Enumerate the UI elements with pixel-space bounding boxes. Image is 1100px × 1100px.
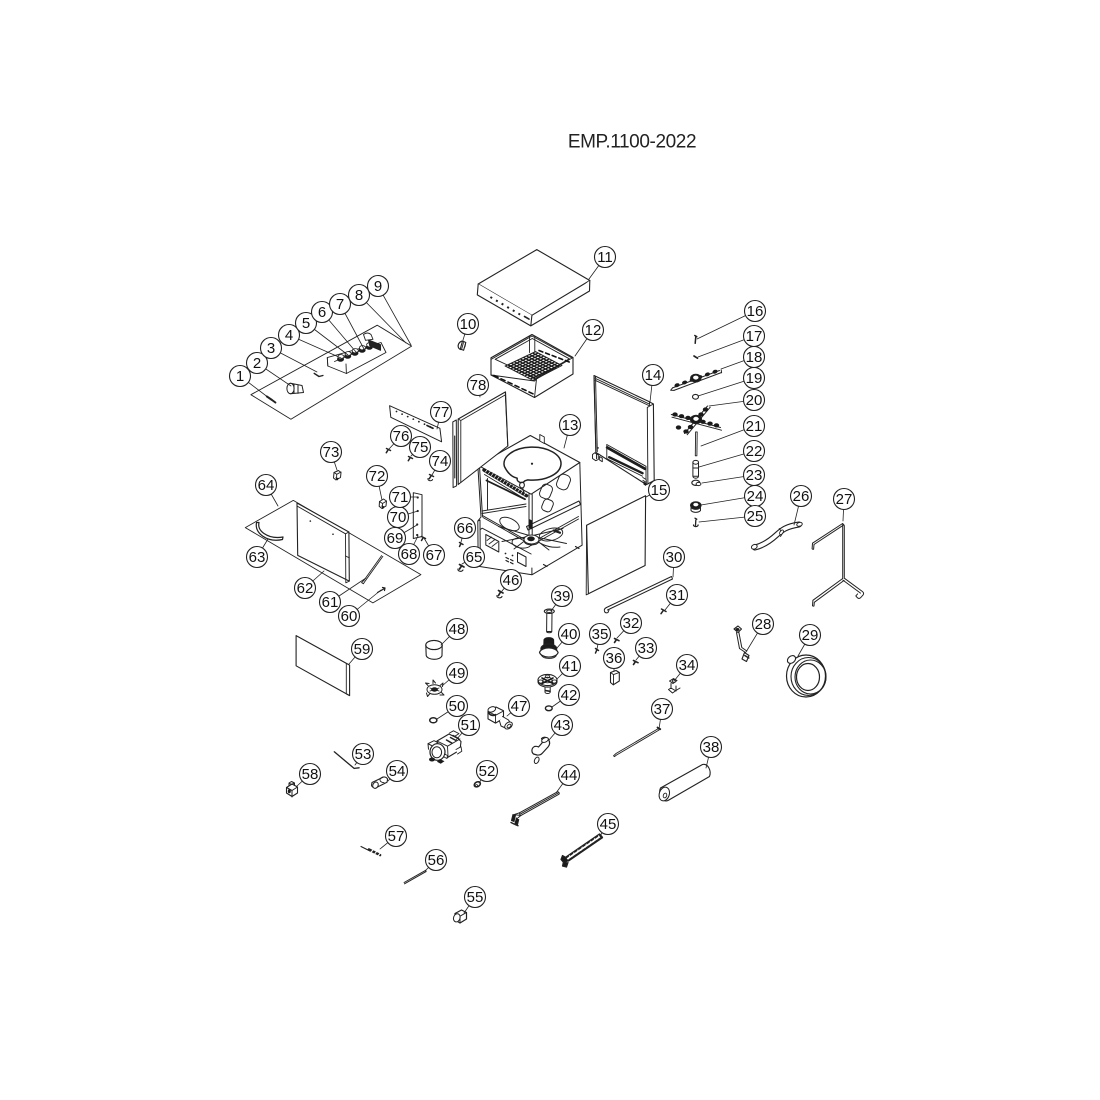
svg-text:47: 47: [511, 698, 528, 715]
svg-text:71: 71: [392, 489, 409, 506]
svg-text:13: 13: [562, 417, 579, 434]
svg-text:38: 38: [703, 739, 720, 756]
svg-text:60: 60: [341, 608, 358, 625]
svg-text:26: 26: [793, 488, 810, 505]
svg-text:35: 35: [592, 626, 609, 643]
svg-text:34: 34: [679, 657, 696, 674]
svg-text:8: 8: [355, 287, 363, 304]
svg-text:28: 28: [755, 616, 772, 633]
svg-text:56: 56: [428, 852, 445, 869]
svg-text:59: 59: [354, 641, 371, 658]
svg-text:18: 18: [746, 349, 763, 366]
svg-text:32: 32: [623, 615, 640, 632]
svg-text:66: 66: [457, 520, 474, 537]
svg-text:17: 17: [746, 328, 763, 345]
svg-text:33: 33: [638, 640, 655, 657]
svg-text:51: 51: [461, 717, 478, 734]
svg-text:73: 73: [323, 444, 340, 461]
svg-text:6: 6: [318, 304, 326, 321]
svg-text:4: 4: [285, 327, 293, 344]
svg-text:74: 74: [432, 453, 449, 470]
svg-text:61: 61: [322, 594, 339, 611]
svg-text:64: 64: [258, 477, 275, 494]
svg-text:24: 24: [747, 488, 764, 505]
svg-text:25: 25: [747, 508, 764, 525]
svg-text:40: 40: [561, 626, 578, 643]
svg-text:19: 19: [746, 370, 763, 387]
svg-text:37: 37: [654, 701, 671, 718]
svg-text:11: 11: [597, 249, 613, 266]
svg-text:42: 42: [561, 687, 578, 704]
svg-text:48: 48: [449, 621, 466, 638]
svg-text:55: 55: [467, 889, 484, 906]
svg-text:12: 12: [585, 322, 602, 339]
svg-text:68: 68: [401, 546, 418, 563]
svg-text:44: 44: [561, 767, 578, 784]
svg-text:21: 21: [746, 418, 763, 435]
svg-text:41: 41: [562, 658, 579, 675]
svg-text:50: 50: [449, 698, 466, 715]
svg-text:77: 77: [433, 404, 450, 421]
svg-text:69: 69: [387, 530, 404, 547]
svg-text:49: 49: [449, 665, 466, 682]
svg-text:45: 45: [600, 816, 617, 833]
svg-text:52: 52: [479, 763, 496, 780]
svg-text:5: 5: [302, 315, 310, 332]
svg-text:7: 7: [336, 296, 344, 313]
svg-text:70: 70: [390, 509, 407, 526]
svg-text:76: 76: [393, 428, 410, 445]
svg-text:27: 27: [836, 491, 853, 508]
svg-text:53: 53: [355, 746, 372, 763]
svg-text:15: 15: [651, 482, 668, 499]
svg-text:29: 29: [802, 627, 819, 644]
svg-text:23: 23: [746, 467, 763, 484]
svg-text:39: 39: [554, 588, 571, 605]
svg-text:78: 78: [470, 377, 487, 394]
svg-text:14: 14: [645, 367, 662, 384]
svg-text:62: 62: [297, 580, 314, 597]
svg-text:63: 63: [249, 549, 266, 566]
svg-text:30: 30: [666, 549, 683, 566]
svg-text:75: 75: [412, 439, 429, 456]
svg-text:10: 10: [460, 316, 477, 333]
svg-text:72: 72: [369, 468, 386, 485]
svg-text:58: 58: [302, 766, 319, 783]
svg-text:3: 3: [267, 340, 275, 357]
svg-text:31: 31: [669, 587, 686, 604]
svg-text:20: 20: [746, 392, 763, 409]
svg-text:57: 57: [388, 828, 405, 845]
svg-text:54: 54: [389, 763, 406, 780]
svg-text:67: 67: [426, 547, 443, 564]
svg-text:9: 9: [374, 278, 382, 295]
svg-text:46: 46: [503, 572, 520, 589]
svg-text:65: 65: [466, 549, 483, 566]
svg-text:16: 16: [747, 303, 764, 320]
svg-text:36: 36: [606, 650, 623, 667]
svg-text:1: 1: [236, 368, 244, 385]
svg-text:43: 43: [554, 717, 571, 734]
svg-text:EMP.1100-2022: EMP.1100-2022: [568, 132, 696, 153]
svg-text:2: 2: [253, 355, 261, 372]
svg-text:22: 22: [746, 443, 763, 460]
